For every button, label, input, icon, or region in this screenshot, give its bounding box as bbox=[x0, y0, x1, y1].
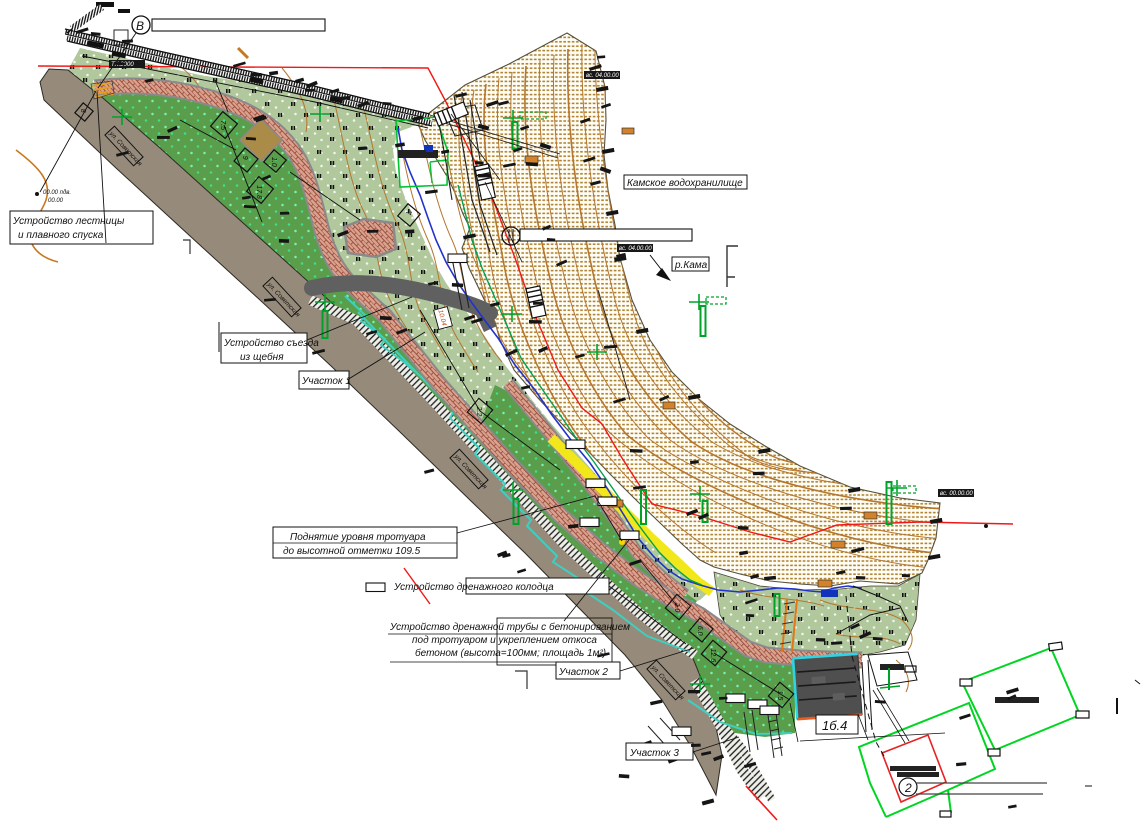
svg-text:2.0: 2.0 bbox=[673, 602, 680, 613]
svg-text:2.2: 2.2 bbox=[475, 406, 482, 417]
svg-text:Устройство дренажной трубы с б: Устройство дренажной трубы с бетонирован… bbox=[389, 621, 630, 633]
svg-text:00.00: 00.00 bbox=[48, 198, 64, 204]
svg-text:1.0: 1.0 bbox=[270, 157, 277, 167]
svg-text:1б.4: 1б.4 bbox=[822, 718, 847, 733]
svg-text:р.Кама: р.Кама bbox=[674, 260, 708, 271]
svg-text:Камское водохранилище: Камское водохранилище bbox=[627, 178, 743, 189]
svg-text:6.0: 6.0 bbox=[696, 626, 703, 636]
svg-text:вс. 00.00.00: вс. 00.00.00 bbox=[940, 491, 973, 497]
svg-text:Устройство съезда: Устройство съезда bbox=[223, 338, 319, 349]
svg-text:бетоном (высота=100мм; площадь: бетоном (высота=100мм; площадь 1м²) bbox=[415, 647, 606, 659]
svg-text:под тротуаром и укреплением от: под тротуаром и укреплением откоса bbox=[412, 635, 597, 646]
svg-text:до высотной отметки 109.5: до высотной отметки 109.5 bbox=[283, 546, 421, 557]
svg-text:Устройство лестницы: Устройство лестницы bbox=[12, 216, 125, 227]
svg-text:00.00 пдв.: 00.00 пдв. bbox=[43, 190, 71, 196]
svg-text:17.8: 17.8 bbox=[255, 185, 262, 199]
svg-text:вс. 04.00.00: вс. 04.00.00 bbox=[586, 73, 619, 79]
svg-text:Устройство дренажного колодца: Устройство дренажного колодца bbox=[393, 582, 554, 593]
svg-text:Участок 3: Участок 3 bbox=[629, 748, 679, 759]
svg-text:вс. 04.00.00: вс. 04.00.00 bbox=[619, 246, 652, 252]
svg-text:12.6: 12.6 bbox=[709, 649, 716, 663]
svg-text:и плавного спуска: и плавного спуска bbox=[18, 230, 104, 241]
svg-text:2: 2 bbox=[904, 781, 912, 795]
svg-text:Участок 1: Участок 1 bbox=[301, 376, 351, 387]
svg-text:Поднятие уровня тротуара: Поднятие уровня тротуара bbox=[290, 532, 426, 543]
svg-text:В: В bbox=[136, 19, 144, 33]
svg-text:Участок 2: Участок 2 bbox=[558, 667, 608, 678]
svg-text:из щебня: из щебня bbox=[240, 351, 284, 363]
svg-text:9: 9 bbox=[241, 156, 248, 160]
